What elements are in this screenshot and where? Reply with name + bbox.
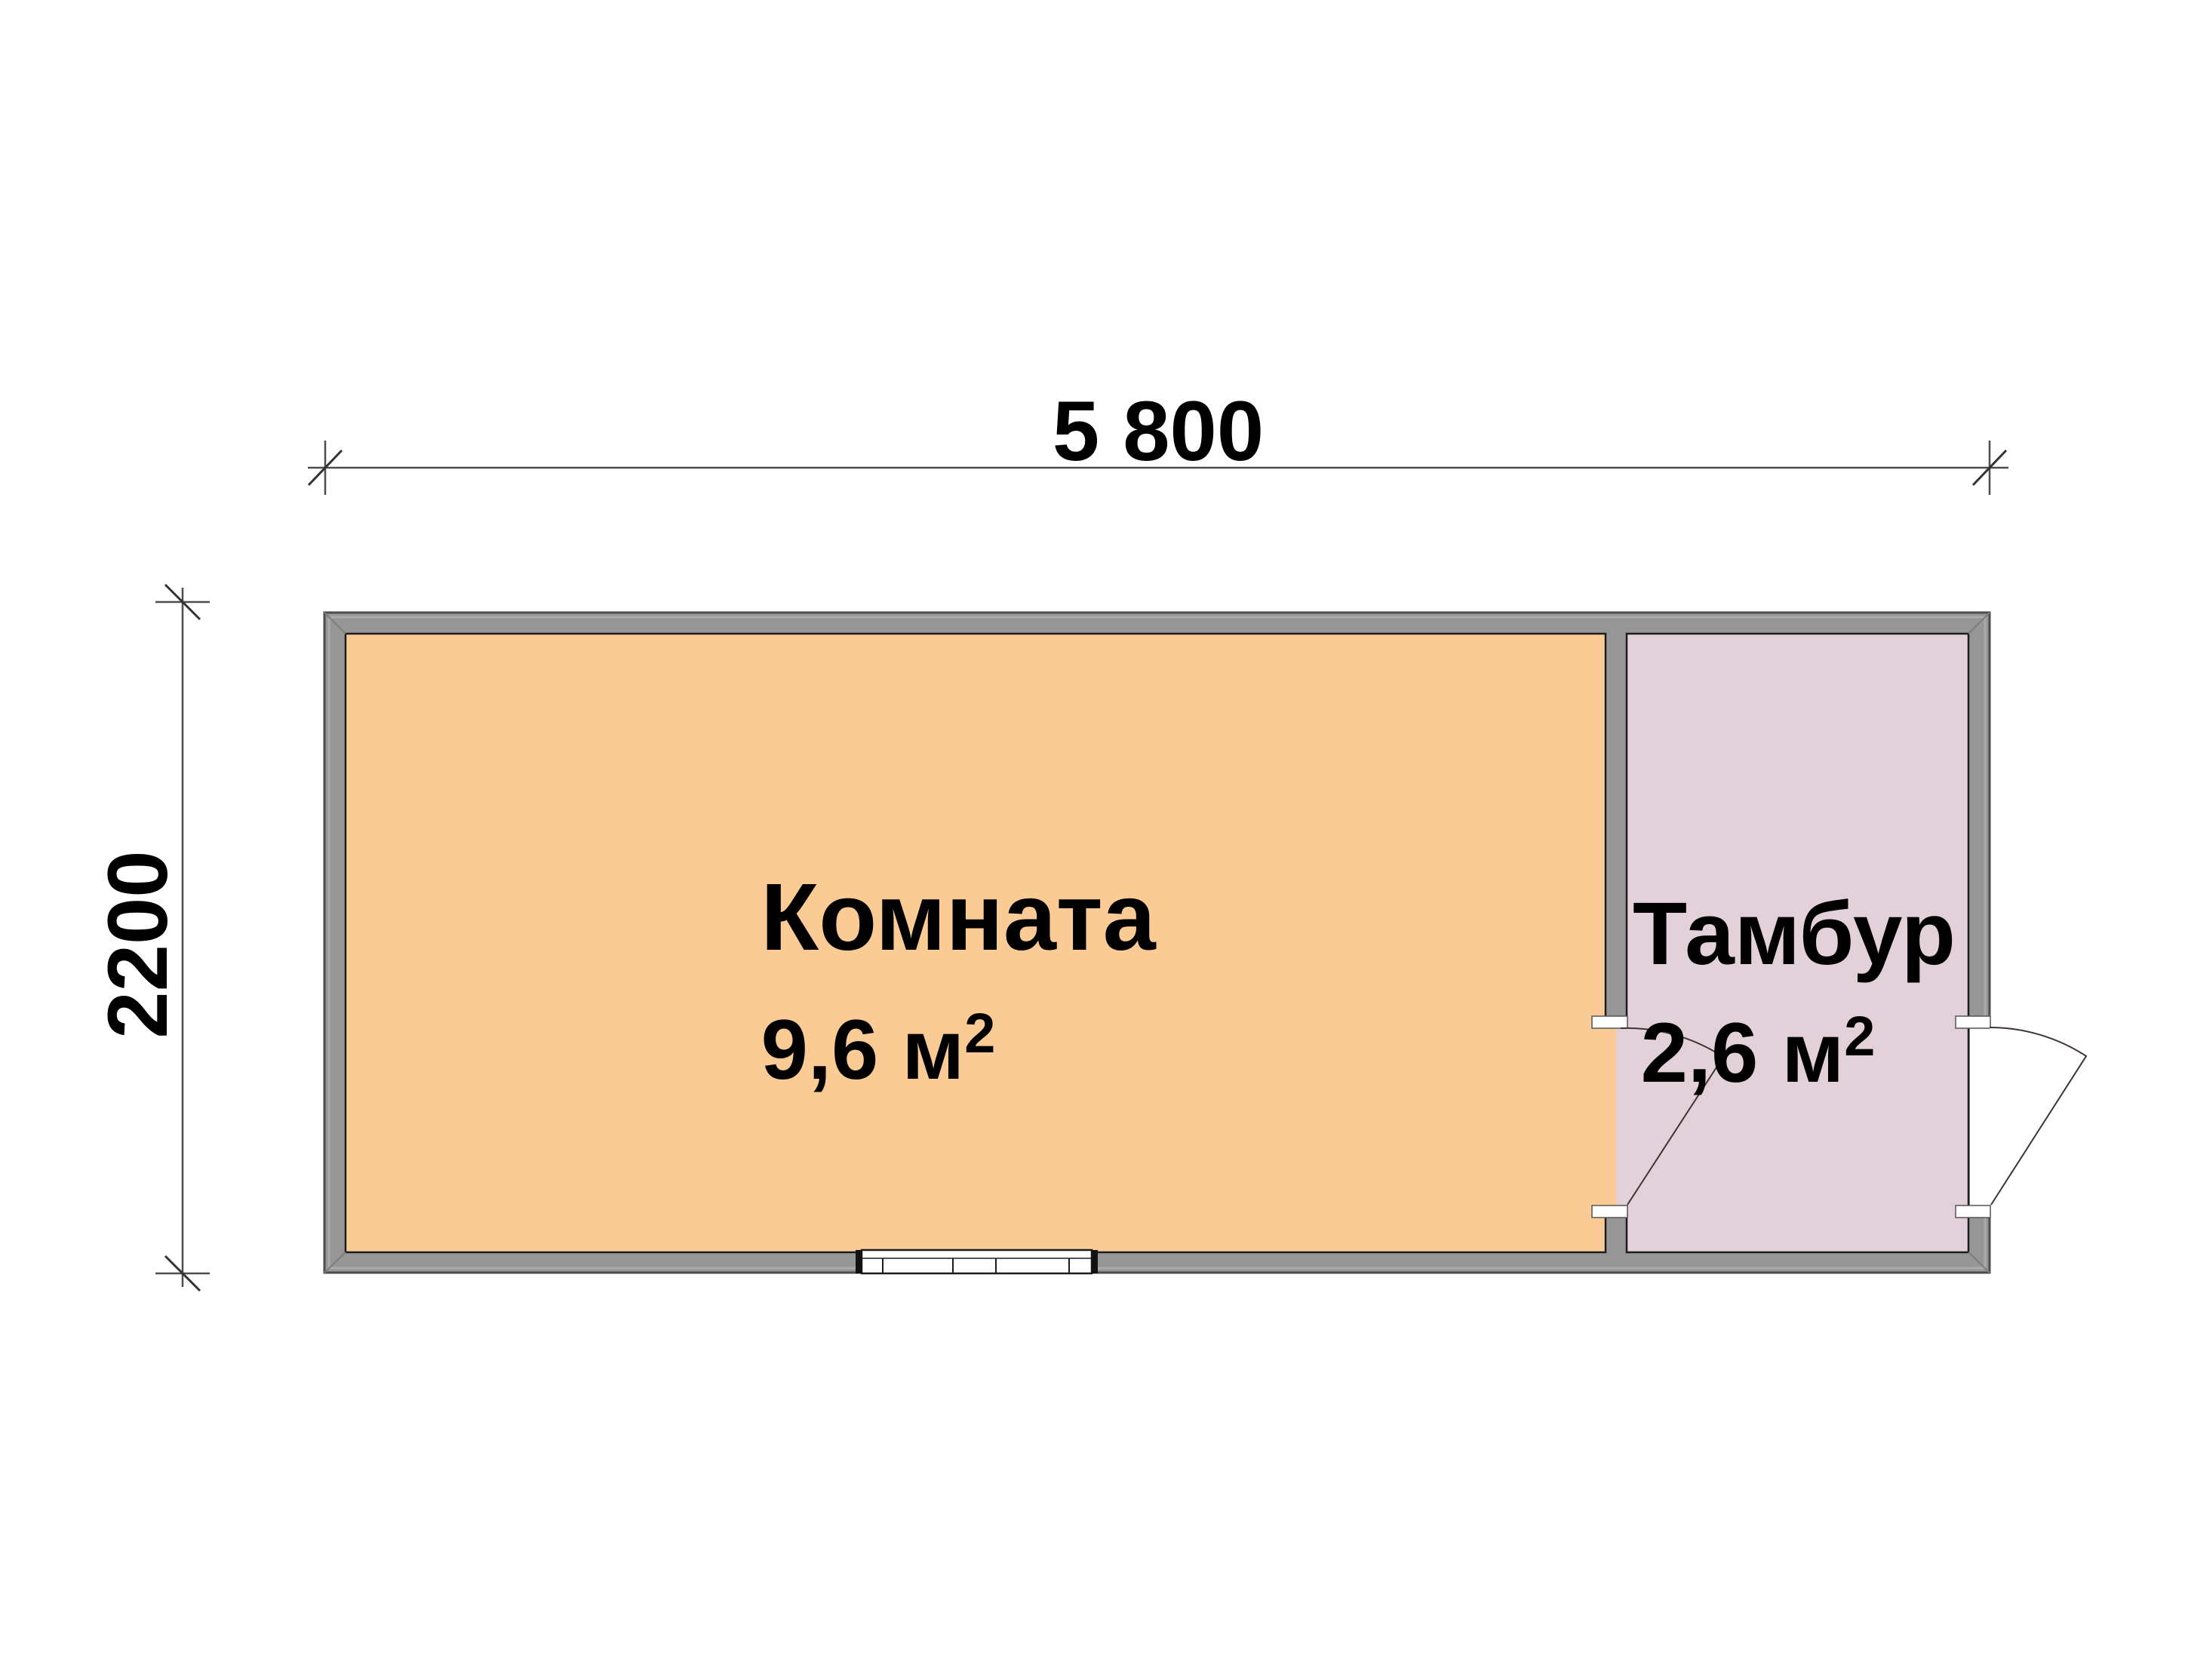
exterior-door-leaf-fill bbox=[1990, 1027, 2086, 1205]
room-tambur-area-value: 2,6 м bbox=[1641, 1006, 1845, 1100]
window-frame bbox=[862, 1250, 1092, 1273]
exterior-door-opening bbox=[1970, 1027, 1991, 1205]
dimension-width-label: 5 800 bbox=[1053, 389, 1264, 474]
exterior-door-jamb-top bbox=[1956, 1016, 1990, 1028]
room-tambur-area-exponent: 2 bbox=[1844, 1005, 1875, 1067]
room-komnata-area-value: 9,6 м bbox=[761, 1003, 965, 1097]
exterior-door-jamb-bottom bbox=[1956, 1205, 1990, 1218]
room-tambur-area: 2,6 м2 bbox=[1641, 1011, 1876, 1095]
window-end-cap-right bbox=[1092, 1250, 1098, 1273]
room-komnata-label: Комната bbox=[761, 870, 1155, 965]
floor-plan-drawing bbox=[0, 0, 2185, 1680]
interior-door-jamb-bottom bbox=[1592, 1205, 1627, 1218]
floor-plan: 5 800 2200 Комната 9,6 м2 Тамбур 2,6 м2 bbox=[0, 0, 2185, 1680]
room-tambur-label: Тамбур bbox=[1633, 889, 1956, 978]
room-komnata-area: 9,6 м2 bbox=[761, 1008, 996, 1092]
window-end-cap-left bbox=[856, 1250, 862, 1273]
room-komnata-area-exponent: 2 bbox=[964, 1002, 995, 1064]
interior-door-opening-left bbox=[1604, 1027, 1617, 1205]
interior-door-jamb-top bbox=[1592, 1016, 1627, 1028]
window bbox=[856, 1250, 1098, 1273]
interior-door-opening-right bbox=[1616, 1027, 1629, 1205]
dimension-height-label: 2200 bbox=[96, 850, 180, 1038]
